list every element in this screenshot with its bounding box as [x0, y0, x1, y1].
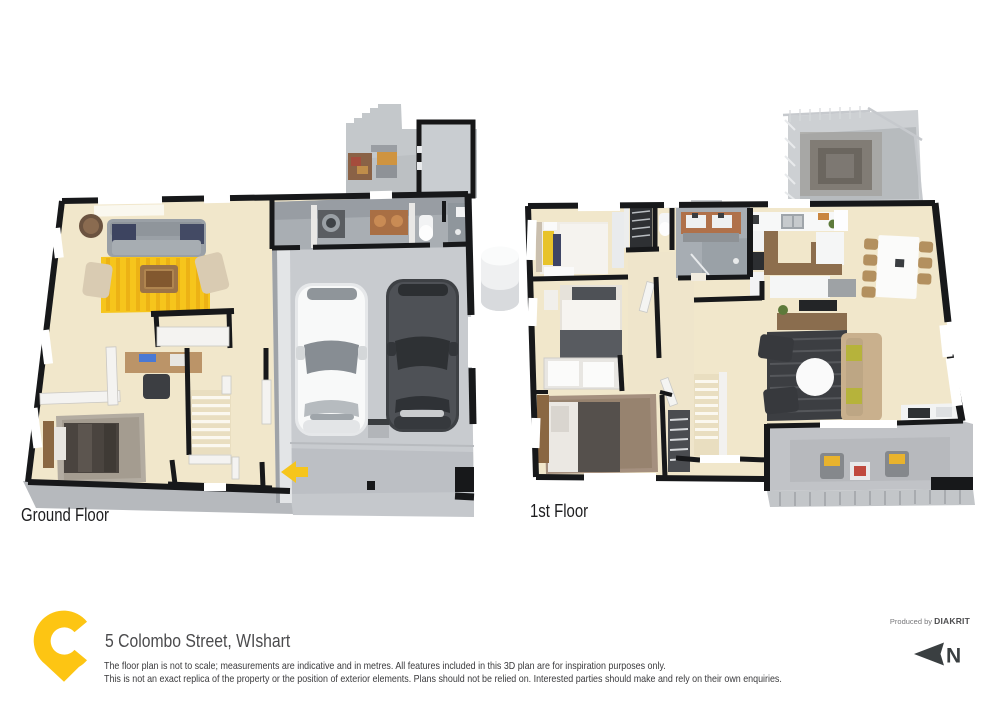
- svg-text:N: N: [946, 645, 961, 668]
